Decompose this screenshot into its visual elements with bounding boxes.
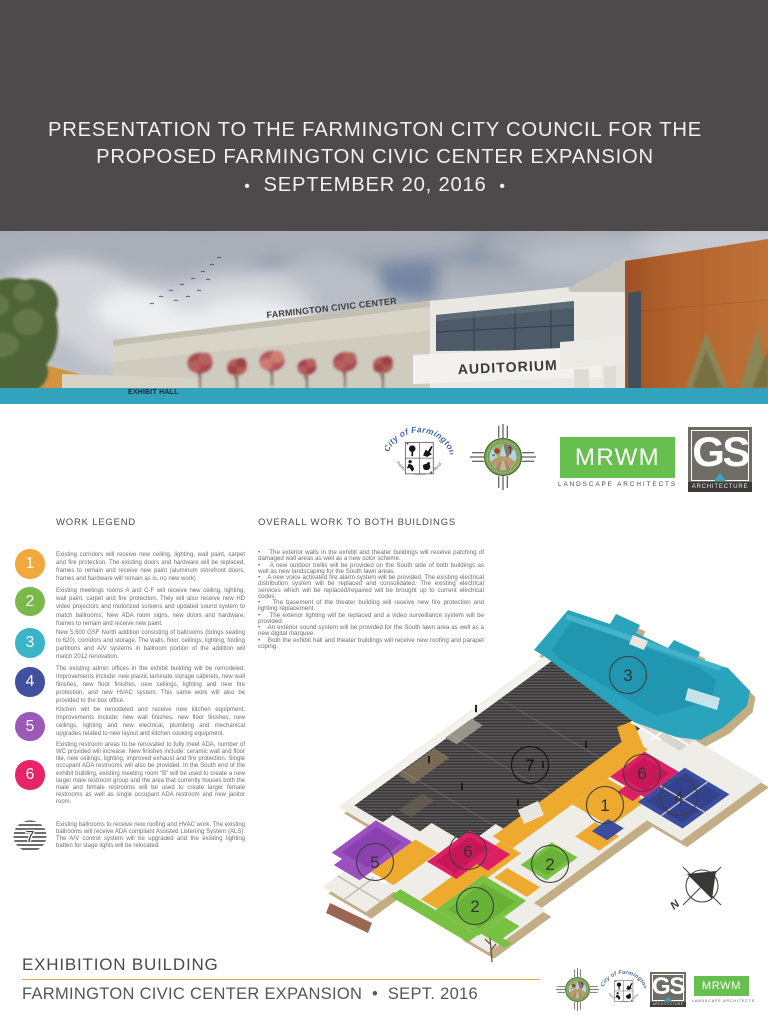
svg-text:7: 7: [525, 756, 534, 775]
svg-text:2: 2: [545, 855, 554, 874]
svg-text:5: 5: [370, 853, 379, 872]
svg-text:6: 6: [463, 842, 472, 861]
svg-text:6: 6: [637, 764, 646, 783]
svg-text:7: 7: [26, 829, 35, 846]
svg-text:N: N: [668, 897, 683, 912]
svg-text:3: 3: [623, 666, 632, 685]
svg-text:1: 1: [600, 796, 609, 815]
svg-text:2: 2: [470, 897, 479, 916]
svg-text:4: 4: [674, 788, 683, 807]
